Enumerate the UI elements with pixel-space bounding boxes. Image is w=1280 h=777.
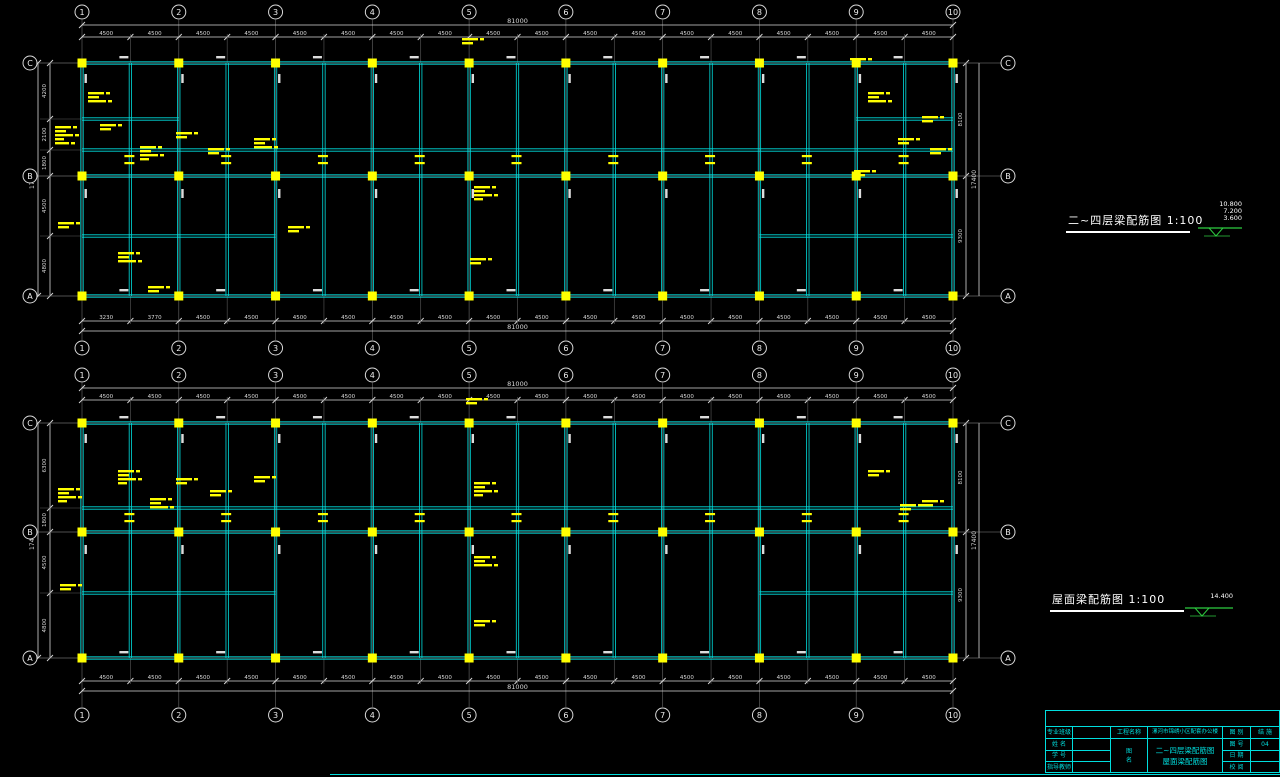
grid-bubble-label: A xyxy=(27,292,33,301)
dimension-text: 4500 xyxy=(148,675,162,681)
grid-bubble-label: 1 xyxy=(79,711,84,720)
annotation-blob xyxy=(148,290,159,292)
annotation-blob xyxy=(100,128,111,130)
micro-label xyxy=(85,545,87,554)
micro-label xyxy=(410,289,419,291)
dimension-text: 4500 xyxy=(777,675,791,681)
micro-label xyxy=(894,56,903,58)
dimension-text: 3770 xyxy=(148,315,162,321)
column-marker xyxy=(658,419,667,428)
dimension-text: 4500 xyxy=(341,31,355,37)
annotation-blob xyxy=(474,560,485,562)
dimension-text: 4500 xyxy=(680,675,694,681)
micro-label xyxy=(472,545,474,554)
annotation-blob xyxy=(166,286,170,288)
annotation-blob xyxy=(124,513,134,515)
title-block-header-strip xyxy=(1046,711,1279,727)
micro-label xyxy=(472,434,474,443)
annotation-blob xyxy=(474,564,492,566)
micro-label xyxy=(313,416,322,418)
annotation-blob xyxy=(705,513,715,515)
annotation-blob xyxy=(55,142,69,144)
annotation-blob xyxy=(512,520,522,522)
annotation-blob xyxy=(228,490,232,492)
column-marker xyxy=(755,528,764,537)
roof-plan: 8100045004500450045004500450045004500450… xyxy=(23,368,1015,722)
annotation-blob xyxy=(900,508,911,510)
tb-project-label: 工程名称 xyxy=(1111,727,1148,739)
grid-bubble-label: 1 xyxy=(79,8,84,17)
micro-label xyxy=(119,416,128,418)
annotation-blob xyxy=(922,120,933,122)
annotation-blob xyxy=(118,124,122,126)
grid-bubble-label: C xyxy=(1005,419,1011,428)
dimension-text: 1800 xyxy=(42,513,48,527)
tb-value-sheet-type: 结 施 xyxy=(1251,727,1279,739)
annotation-blob xyxy=(136,470,140,472)
dimension-text: 4500 xyxy=(825,394,839,400)
dimension-text: 4500 xyxy=(777,394,791,400)
micro-label xyxy=(119,56,128,58)
annotation-blob xyxy=(470,258,486,260)
dimension-text: 2100 xyxy=(42,127,48,141)
column-marker xyxy=(271,292,280,301)
annotation-blob xyxy=(288,226,304,228)
annotation-blob xyxy=(55,138,64,140)
micro-label xyxy=(119,289,128,291)
micro-label xyxy=(894,416,903,418)
dimension-text: 4500 xyxy=(728,675,742,681)
column-marker xyxy=(174,172,183,181)
annotation-blob xyxy=(899,513,909,515)
dimension-text: 4500 xyxy=(196,31,210,37)
annotation-blob xyxy=(948,148,952,150)
micro-label xyxy=(181,434,183,443)
annotation-blob xyxy=(802,520,812,522)
dimension-text: 4800 xyxy=(42,618,48,632)
annotation-blob xyxy=(802,162,812,164)
annotation-blob xyxy=(88,96,99,98)
grid-bubble-label: 2 xyxy=(176,344,181,353)
column-marker xyxy=(174,528,183,537)
dimension-text: 3230 xyxy=(99,315,113,321)
annotation-blob xyxy=(899,155,909,157)
annotation-blob xyxy=(58,226,69,228)
micro-label xyxy=(181,189,183,198)
dimension-text: 81000 xyxy=(507,380,528,388)
dimension-text: 4500 xyxy=(244,394,258,400)
column-marker xyxy=(658,292,667,301)
annotation-blob xyxy=(872,170,876,172)
annotation-blob xyxy=(922,116,938,118)
micro-label xyxy=(603,416,612,418)
micro-label xyxy=(216,416,225,418)
annotation-blob xyxy=(474,486,485,488)
column-marker xyxy=(755,654,764,663)
grid-bubble-label: B xyxy=(27,172,33,181)
dimension-text: 4500 xyxy=(438,675,452,681)
annotation-blob xyxy=(868,96,879,98)
micro-label xyxy=(85,434,87,443)
column-marker xyxy=(271,528,280,537)
annotation-blob xyxy=(160,154,164,156)
annotation-blob xyxy=(78,496,82,498)
micro-label xyxy=(181,545,183,554)
dimension-text: 4500 xyxy=(680,31,694,37)
grid-bubble-label: 6 xyxy=(563,371,568,380)
annotation-blob xyxy=(705,520,715,522)
column-marker xyxy=(658,172,667,181)
tb-sheet-label-top: 图 xyxy=(1126,749,1132,755)
dimension-text: 4500 xyxy=(777,315,791,321)
annotation-blob xyxy=(254,476,270,478)
dimension-text: 81000 xyxy=(507,323,528,331)
tb-sheet-names: 二~四层梁配筋图 屋面梁配筋图 xyxy=(1148,739,1223,773)
annotation-blob xyxy=(512,155,522,157)
column-marker xyxy=(465,528,474,537)
annotation-blob xyxy=(474,620,490,622)
elevation-value: 3.600 xyxy=(1223,214,1242,222)
column-marker xyxy=(561,59,570,68)
tb-value-date xyxy=(1251,751,1279,762)
annotation-blob xyxy=(900,504,916,506)
annotation-blob xyxy=(138,260,142,262)
dimension-text: 4500 xyxy=(244,315,258,321)
grid-bubble-label: 1 xyxy=(79,344,84,353)
dimension-text: 4500 xyxy=(438,394,452,400)
column-marker xyxy=(561,419,570,428)
annotation-blob xyxy=(802,513,812,515)
annotation-blob xyxy=(462,42,473,44)
dimension-text: 4500 xyxy=(293,675,307,681)
annotation-blob xyxy=(898,142,909,144)
annotation-blob xyxy=(118,260,136,262)
annotation-blob xyxy=(474,556,490,558)
column-marker xyxy=(561,528,570,537)
cad-canvas: 8100045004500450045004500450045004500450… xyxy=(0,0,1280,777)
grid-bubble-label: 5 xyxy=(467,344,472,353)
dimension-text: 4500 xyxy=(873,394,887,400)
grid-bubble-label: 4 xyxy=(370,371,375,380)
annotation-blob xyxy=(176,482,187,484)
micro-label xyxy=(797,651,806,653)
annotation-blob xyxy=(58,500,67,502)
annotation-blob xyxy=(272,138,276,140)
tb-value-number xyxy=(1073,751,1111,762)
annotation-blob xyxy=(868,470,884,472)
micro-label xyxy=(410,56,419,58)
grid-bubble-label: 9 xyxy=(854,711,859,720)
tb-label-name: 姓 名 xyxy=(1046,739,1073,751)
column-marker xyxy=(465,654,474,663)
annotation-blob xyxy=(60,584,76,586)
column-marker xyxy=(949,654,958,663)
annotation-blob xyxy=(208,152,219,154)
dimension-text: 4500 xyxy=(390,315,404,321)
dimension-text: 4500 xyxy=(680,394,694,400)
grid-bubble-label: 5 xyxy=(467,371,472,380)
annotation-blob xyxy=(118,252,134,254)
annotation-blob xyxy=(462,38,478,40)
annotation-blob xyxy=(136,252,140,254)
annotation-blob xyxy=(176,136,187,138)
dimension-text: 4500 xyxy=(486,31,500,37)
dimension-text: 4500 xyxy=(583,31,597,37)
tb-label-sheet-type: 图 别 xyxy=(1223,727,1251,739)
annotation-blob xyxy=(868,474,879,476)
column-marker xyxy=(368,419,377,428)
annotation-blob xyxy=(470,262,481,264)
tb-sheet-name-2: 屋面梁配筋图 xyxy=(1163,756,1208,767)
dimension-text: 8100 xyxy=(958,470,964,484)
dimension-text: 4500 xyxy=(42,199,48,213)
annotation-blob xyxy=(415,155,425,157)
column-marker xyxy=(755,59,764,68)
annotation-blob xyxy=(194,478,198,480)
annotation-blob xyxy=(608,520,618,522)
dimension-text: 1800 xyxy=(42,156,48,170)
column-marker xyxy=(271,59,280,68)
micro-label xyxy=(665,74,667,83)
tb-label-review: 校 阅 xyxy=(1223,762,1251,773)
dimension-text: 4500 xyxy=(728,31,742,37)
micro-label xyxy=(375,189,377,198)
micro-label xyxy=(665,189,667,198)
micro-label xyxy=(859,74,861,83)
dimension-text: 4500 xyxy=(922,31,936,37)
dimension-text: 4500 xyxy=(583,675,597,681)
micro-labels xyxy=(85,416,958,653)
column-marker xyxy=(949,528,958,537)
annotation-blob xyxy=(118,482,127,484)
micro-label xyxy=(507,289,516,291)
annotation-blob xyxy=(705,162,715,164)
annotation-blob xyxy=(850,58,866,60)
annotation-blob xyxy=(168,498,172,500)
micro-label xyxy=(568,545,570,554)
dimension-text: 4500 xyxy=(438,31,452,37)
grid-bubble-label: 4 xyxy=(370,711,375,720)
column-marker xyxy=(368,528,377,537)
tb-value-review xyxy=(1251,762,1279,773)
column-marker xyxy=(78,172,87,181)
grid-bubble-label: B xyxy=(1005,528,1011,537)
plan-title-floors-2-4: 二~四层梁配筋图 1:100 xyxy=(1066,212,1190,233)
dimension-text: 4500 xyxy=(922,315,936,321)
micro-label xyxy=(603,651,612,653)
micro-label xyxy=(859,434,861,443)
annotation-blob xyxy=(474,494,483,496)
micro-label xyxy=(375,545,377,554)
annotation-blob xyxy=(150,498,166,500)
annotation-blob xyxy=(886,470,890,472)
grid-bubble-label: 6 xyxy=(563,8,568,17)
dimension-text: 4500 xyxy=(196,315,210,321)
micro-label xyxy=(85,189,87,198)
column-marker xyxy=(271,172,280,181)
annotation-blob xyxy=(492,186,496,188)
annotation-blob xyxy=(494,564,498,566)
annotation-blob xyxy=(899,520,909,522)
dimension-text: 17400 xyxy=(971,170,978,189)
dimension-text: 4500 xyxy=(728,315,742,321)
column-marker xyxy=(368,172,377,181)
micro-label xyxy=(797,56,806,58)
grid-bubble-label: 2 xyxy=(176,8,181,17)
grid-bubble-label: 5 xyxy=(467,711,472,720)
annotation-blob xyxy=(88,100,106,102)
annotation-blob xyxy=(118,478,136,480)
grid-bubble-label: 10 xyxy=(948,371,958,380)
annotation-blob xyxy=(118,470,134,472)
dimension-text: 4500 xyxy=(535,675,549,681)
dimension-text: 4500 xyxy=(825,675,839,681)
annotation-blob xyxy=(488,258,492,260)
annotation-blob xyxy=(474,186,490,188)
tb-sheet-label: 图 名 xyxy=(1111,739,1148,773)
micro-label xyxy=(700,416,709,418)
annotation-blob xyxy=(918,504,922,506)
dimension-text: 4500 xyxy=(922,675,936,681)
annotation-blob xyxy=(608,162,618,164)
grid-bubble-label: 8 xyxy=(757,371,762,380)
annotation-blob xyxy=(208,148,224,150)
column-marker xyxy=(949,292,958,301)
grid-bubble-label: 6 xyxy=(563,711,568,720)
annotation-blob xyxy=(494,490,498,492)
elevation-marker: 14.400 xyxy=(1185,592,1233,616)
grid-bubble-label: 7 xyxy=(660,371,665,380)
annotation-blob xyxy=(868,58,872,60)
micro-label xyxy=(956,74,958,83)
beams xyxy=(81,422,954,659)
column-marker xyxy=(658,654,667,663)
annotation-blob xyxy=(415,520,425,522)
annotation-blob xyxy=(226,148,230,150)
dimension-text: 4500 xyxy=(486,675,500,681)
column-marker xyxy=(368,59,377,68)
column-marker xyxy=(852,292,861,301)
dimension-text: 4500 xyxy=(486,394,500,400)
dimension-text: 4500 xyxy=(631,315,645,321)
micro-label xyxy=(375,434,377,443)
grid-bubble-label: C xyxy=(27,419,33,428)
annotation-blob xyxy=(124,162,134,164)
annotation-blob xyxy=(75,134,79,136)
annotation-blob xyxy=(494,194,498,196)
dimension-text: 4500 xyxy=(680,315,694,321)
column-marker xyxy=(755,172,764,181)
grid-bubble-label: 7 xyxy=(660,8,665,17)
annotation-blob xyxy=(484,398,488,400)
dimension-text: 4500 xyxy=(631,675,645,681)
dimension-text: 4500 xyxy=(873,31,887,37)
annotation-blob xyxy=(148,286,164,288)
dimension-text: 4500 xyxy=(873,315,887,321)
dimension-text: 4500 xyxy=(293,315,307,321)
beam-annotations xyxy=(55,38,952,292)
grid-bubble-label: C xyxy=(27,59,33,68)
annotation-blob xyxy=(100,124,116,126)
grid-bubble-label: A xyxy=(1005,654,1011,663)
dimension-text: 81000 xyxy=(507,683,528,691)
annotation-blob xyxy=(608,155,618,157)
grid-bubble-label: B xyxy=(27,528,33,537)
grid-bubble-label: A xyxy=(27,654,33,663)
annotation-blob xyxy=(58,492,69,494)
micro-label xyxy=(956,434,958,443)
annotation-blob xyxy=(512,513,522,515)
grid-bubble-label: B xyxy=(1005,172,1011,181)
column-marker xyxy=(949,59,958,68)
annotation-blob xyxy=(254,146,272,148)
dimension-text: 4500 xyxy=(583,315,597,321)
dimension-text: 4500 xyxy=(293,394,307,400)
annotation-blob xyxy=(886,92,890,94)
column-marker xyxy=(465,292,474,301)
grid-bubble-label: 8 xyxy=(757,711,762,720)
micro-label xyxy=(507,56,516,58)
elevation-value: 14.400 xyxy=(1210,592,1233,600)
tb-value-sheet-no: 04 xyxy=(1251,739,1279,751)
title-block: 专业班级 姓 名 学 号 指导教师 工程名称 图 名 漯河市锦绣小区配套办公楼 … xyxy=(1045,710,1280,773)
annotation-blob xyxy=(76,222,80,224)
grid-bubble-label: 7 xyxy=(660,711,665,720)
dimension-text: 81000 xyxy=(507,17,528,25)
annotation-blob xyxy=(150,502,161,504)
tb-value-name xyxy=(1073,739,1111,751)
micro-labels xyxy=(85,56,958,291)
column-marker xyxy=(174,419,183,428)
dimension-text: 4500 xyxy=(825,315,839,321)
dimension-text: 4500 xyxy=(390,394,404,400)
column-marker xyxy=(174,292,183,301)
dimension-text: 4800 xyxy=(42,259,48,273)
dimension-text: 4500 xyxy=(341,675,355,681)
annotation-blob xyxy=(55,126,71,128)
annotation-blob xyxy=(55,134,73,136)
dimension-text: 17400 xyxy=(971,531,978,550)
dimension-text: 4500 xyxy=(148,31,162,37)
grid-bubble-label: 2 xyxy=(176,371,181,380)
dimension-text: 4500 xyxy=(631,394,645,400)
grid-bubble-label: 3 xyxy=(273,711,278,720)
annotation-blob xyxy=(930,152,941,154)
tb-label-class: 专业班级 xyxy=(1046,727,1073,739)
micro-label xyxy=(507,416,516,418)
micro-label xyxy=(665,434,667,443)
micro-label xyxy=(603,289,612,291)
annotation-blob xyxy=(254,138,270,140)
dimension-text: 4500 xyxy=(873,675,887,681)
micro-label xyxy=(700,56,709,58)
micro-label xyxy=(278,189,280,198)
micro-label xyxy=(472,189,474,198)
annotation-blob xyxy=(150,506,168,508)
annotation-blob xyxy=(802,155,812,157)
annotation-blob xyxy=(221,520,231,522)
grid-bubble-label: 8 xyxy=(757,344,762,353)
micro-label xyxy=(216,651,225,653)
dimension-text: 4500 xyxy=(390,675,404,681)
annotation-blob xyxy=(210,490,226,492)
micro-label xyxy=(278,545,280,554)
micro-label xyxy=(568,189,570,198)
grid-bubble-label: 9 xyxy=(854,8,859,17)
annotation-blob xyxy=(854,170,870,172)
annotation-blob xyxy=(118,256,129,258)
annotation-blob xyxy=(512,162,522,164)
